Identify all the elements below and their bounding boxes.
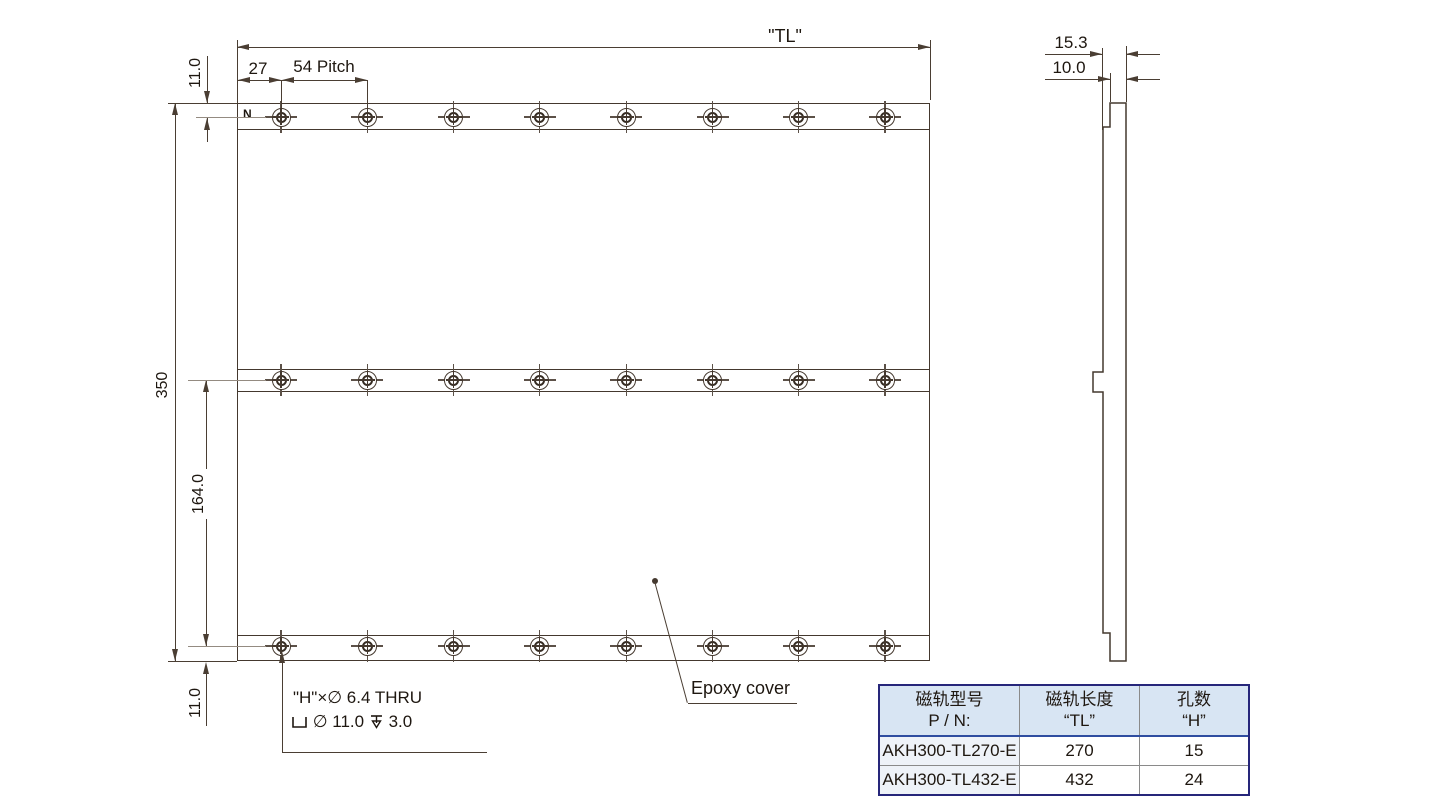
table-header-pn: 磁轨型号 P / N:: [880, 686, 1020, 735]
part-number-table: 磁轨型号 P / N: 磁轨长度 “TL” 孔数 “H” AKH300-TL27…: [878, 684, 1250, 796]
table-cell-pn: AKH300-TL270-E: [880, 737, 1020, 765]
side-extension-right-face: [1126, 46, 1127, 102]
dim100-label: 10.0: [1044, 58, 1094, 78]
table-cell-pn: AKH300-TL432-E: [880, 766, 1020, 794]
table-header-holes: 孔数 “H”: [1140, 686, 1248, 735]
dim100-arrow-left: [1098, 76, 1110, 82]
table-header-row: 磁轨型号 P / N: 磁轨长度 “TL” 孔数 “H”: [880, 686, 1248, 737]
table-row: AKH300-TL432-E 432 24: [880, 766, 1248, 794]
table-cell-tl: 270: [1020, 737, 1140, 765]
table-header-tl: 磁轨长度 “TL”: [1020, 686, 1140, 735]
table-cell-tl: 432: [1020, 766, 1140, 794]
table-row: AKH300-TL270-E 270 15: [880, 737, 1248, 766]
table-cell-h: 24: [1140, 766, 1248, 794]
technical-drawing-canvas: N "TL" 27 54 Pitch 11.0 350 164.0 11.0 "…: [0, 0, 1438, 812]
side-extension-body-face: [1110, 73, 1111, 102]
dim153-arrow-right: [1126, 51, 1138, 57]
dim100-arrow-right: [1126, 76, 1138, 82]
side-extension-left-face: [1102, 48, 1103, 130]
table-cell-h: 15: [1140, 737, 1248, 765]
dim153-label: 15.3: [1045, 33, 1097, 53]
